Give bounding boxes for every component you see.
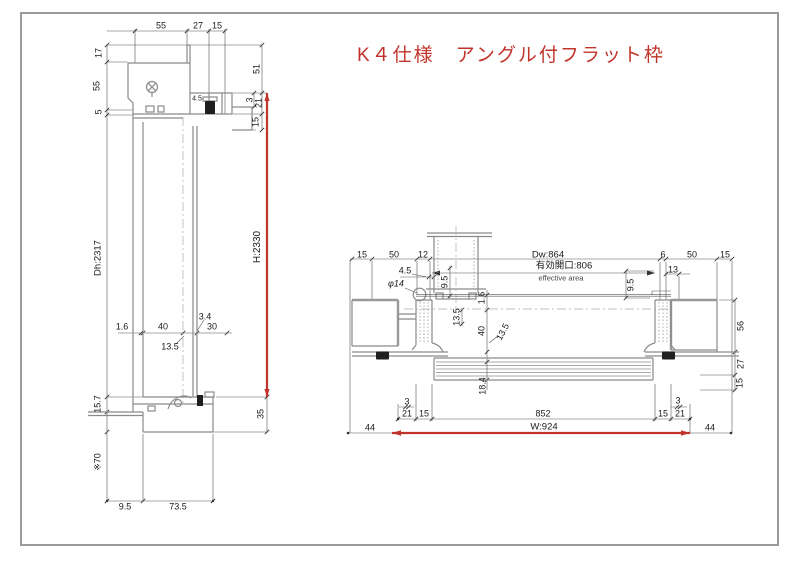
door-leaf (404, 295, 671, 380)
lock-cylinder (175, 400, 182, 407)
cad-drawing (0, 0, 800, 565)
anchor-bolt-icon (662, 352, 675, 360)
sill-bolt-icon (197, 395, 203, 406)
leaf-hatch (436, 362, 651, 376)
floor-lines (352, 352, 739, 356)
head-frame-profile (128, 45, 252, 130)
wall-section (352, 300, 739, 356)
dimension-lines (348, 257, 737, 433)
sill-plate (205, 392, 214, 397)
anchor-bolt-icon (205, 101, 215, 114)
anchor-plate (203, 97, 217, 101)
horizontal-section-view (347, 226, 739, 436)
frame-body-lines (133, 114, 197, 412)
clip-detail (158, 106, 164, 112)
lock-detail (168, 396, 191, 409)
clip-detail (146, 106, 154, 112)
anchor-bolt-icon (376, 352, 389, 360)
vertical-section-view (88, 29, 270, 503)
overall-height-line (264, 93, 269, 397)
overall-width-line (392, 430, 690, 436)
sill-clip (148, 406, 155, 411)
closer-box (426, 226, 492, 308)
